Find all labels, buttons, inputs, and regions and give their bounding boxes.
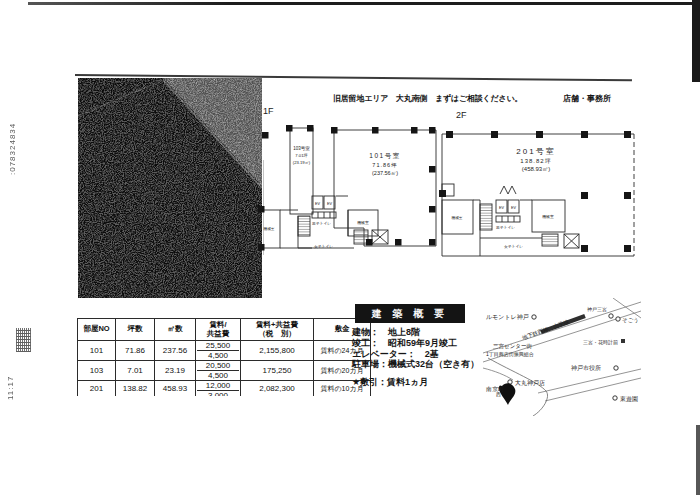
station-square-icon (621, 339, 625, 343)
col-header-text: 共益費 (197, 330, 239, 339)
fax-time-vertical: 11:17 (6, 358, 15, 400)
col-header-text: （税 別） (242, 330, 312, 339)
overview-deposit-note: ★敷引：賃料1ヵ月 (352, 376, 428, 389)
cell-rent-fee: 20,500 4,500 (196, 361, 241, 381)
cell-room-no: 103 (78, 361, 116, 381)
map-label-sogo: そごう (622, 317, 639, 324)
page-title: 旧居留地エリア 大丸南側 まずはご相談ください。 (333, 93, 522, 104)
map-label-daimaru: 大丸神戸店 (515, 379, 545, 387)
cell-total: 2,082,300 (241, 381, 314, 397)
cell-total: 175,250 (241, 361, 314, 381)
machine-room-label: 機械室 (357, 220, 369, 225)
room-101-tsubo: 71.86坪 (372, 162, 397, 168)
room-201-sqm: (458.93㎡) (522, 166, 550, 172)
fee-value: 4,500 (197, 351, 239, 360)
elevator-label: EV (315, 202, 321, 206)
fax-number-vertical: :078324834 (8, 85, 17, 175)
map-label-park: 東遊園 (620, 396, 638, 403)
table-row: 103 7.01 23.19 20,500 4,500 175,250 賃料の2… (78, 361, 371, 381)
rent-value: 20,500 (197, 361, 239, 371)
map-label-subway-line: 地下鉄西神・山手線 (520, 318, 570, 342)
table-row: 201 138.82 458.93 12,000 3,000 2,082,300… (78, 381, 371, 397)
womens-toilet-label: 女子トイレ (504, 244, 523, 249)
map-label-nankinmachi: 南京町 (486, 385, 504, 392)
overview-items: 建物： 地上8階 竣工： 昭和59年9月竣工 エレベーター： 2基 駐車場：機械… (352, 327, 497, 370)
cell-tsubo: 138.82 (116, 381, 155, 397)
mens-toilet-label: 男子トイレ (496, 225, 515, 230)
cell-total: 2,155,800 (241, 341, 314, 361)
stamp-mark (16, 328, 31, 352)
col-header-rent: 賃料/ 共益費 (196, 319, 241, 341)
map-label-nishi: 西 (496, 391, 501, 398)
col-header-total: 賃料+共益費 （税 別） (241, 319, 314, 341)
col-header-room-no: 部屋NO (78, 319, 116, 341)
cell-sqm: 237.56 (155, 341, 196, 361)
machine-room-label: 機械室 (264, 226, 275, 231)
rent-table: 部屋NO 坪数 ㎡数 賃料/ 共益費 賃料+共益費 （税 別） 敷金 101 7… (77, 318, 371, 396)
floor-1f-label: 1F (263, 106, 274, 116)
fee-value: 4,500 (197, 371, 239, 380)
room-103-tsubo: 7.01坪 (295, 153, 308, 158)
cell-sqm: 458.93 (155, 381, 196, 397)
room-101-name: 101号室 (369, 152, 400, 159)
machine-room-label: 機械室 (452, 215, 463, 220)
room-201-tsubo: 138.82坪 (520, 158, 551, 164)
map-label-shopping-street-2: 1丁目商店街振興組合 (486, 351, 534, 358)
location-map: ルモントレ神戸 地下鉄西神・山手線 三宮センター街 1丁目商店街振興組合 神戸三… (483, 298, 641, 416)
mens-toilet-label: 男子トイレ (312, 221, 331, 226)
overview-elevator: エレベーター： 2基 (352, 349, 497, 360)
col-header-text: 坪数 (128, 324, 143, 333)
map-label-city-hall: 神戸市役所 (571, 364, 601, 371)
elevator-label: EV (499, 206, 505, 210)
cell-room-no: 101 (78, 341, 116, 361)
room-101-sqm: (237.56㎡) (372, 170, 398, 176)
cell-tsubo: 7.01 (116, 361, 155, 381)
cell-room-no: 201 (78, 381, 116, 397)
overview-completion: 竣工： 昭和59年9月竣工 (352, 338, 497, 349)
col-header-tsubo: 坪数 (116, 319, 155, 341)
cell-rent-fee: 25,500 4,500 (196, 341, 241, 361)
scan-right-edge-top (692, 0, 700, 82)
room-103-name: 103号室 (293, 146, 310, 151)
building-photo (78, 78, 262, 298)
col-header-text: ㎡数 (168, 324, 183, 333)
rent-value: 12,000 (197, 381, 239, 391)
elevator-label: EV (327, 202, 333, 206)
overview-parking: 駐車場：機械式32台（空き有） (352, 359, 497, 370)
fee-value: 3,000 (197, 391, 239, 396)
overview-title: 建 築 概 要 (355, 304, 465, 323)
room-103-sqm: (23.19㎡) (293, 160, 311, 165)
elevator-label: EV (511, 206, 517, 210)
overview-building: 建物： 地上8階 (352, 327, 497, 338)
floorplan-1f-columns (258, 125, 436, 251)
cell-rent-fee: 12,000 3,000 (196, 381, 241, 397)
floorplan-2f: 201号室 138.82坪 (458.93㎡) EV EV 男子トイレ 機械室 … (438, 126, 642, 272)
table-header-row: 部屋NO 坪数 ㎡数 賃料/ 共益費 賃料+共益費 （税 別） 敷金 (78, 319, 371, 341)
floorplan-1f-walls (258, 128, 436, 248)
rent-value: 25,500 (197, 341, 239, 351)
womens-toilet-label: 女子トイレ (314, 244, 333, 249)
machine-room-label: 機械室 (542, 214, 554, 219)
map-label-sannomiya: 神戸三宮 (587, 306, 607, 312)
cell-tsubo: 71.86 (116, 341, 155, 361)
scanned-flyer-page: :078324834 11:17 旧居留地エリア 大丸南側 まずはご相談ください… (0, 0, 700, 495)
map-label-hotel: ルモントレ神戸 (486, 313, 529, 320)
map-label-shopping-street-1: 三宮センター街 (493, 343, 532, 350)
scan-top-edge (28, 2, 700, 5)
room-201-name: 201号室 (516, 147, 555, 156)
scan-right-edge-bottom (696, 425, 700, 495)
floor-2f-label: 2F (456, 110, 467, 120)
map-label-hanadokei-station: 三宮・花時計前 (583, 339, 618, 346)
cell-sqm: 23.19 (155, 361, 196, 381)
usage-category-label: 店舗・事務所 (563, 93, 611, 104)
col-header-text: 敷金 (335, 324, 350, 333)
floorplan-1f: 103号室 7.01坪 (23.19㎡) 101号室 71.86坪 (237.5… (256, 124, 440, 274)
table-row: 101 71.86 237.56 25,500 4,500 2,155,800 … (78, 341, 371, 361)
col-header-text: 部屋NO (83, 324, 109, 333)
col-header-sqm: ㎡数 (155, 319, 196, 341)
